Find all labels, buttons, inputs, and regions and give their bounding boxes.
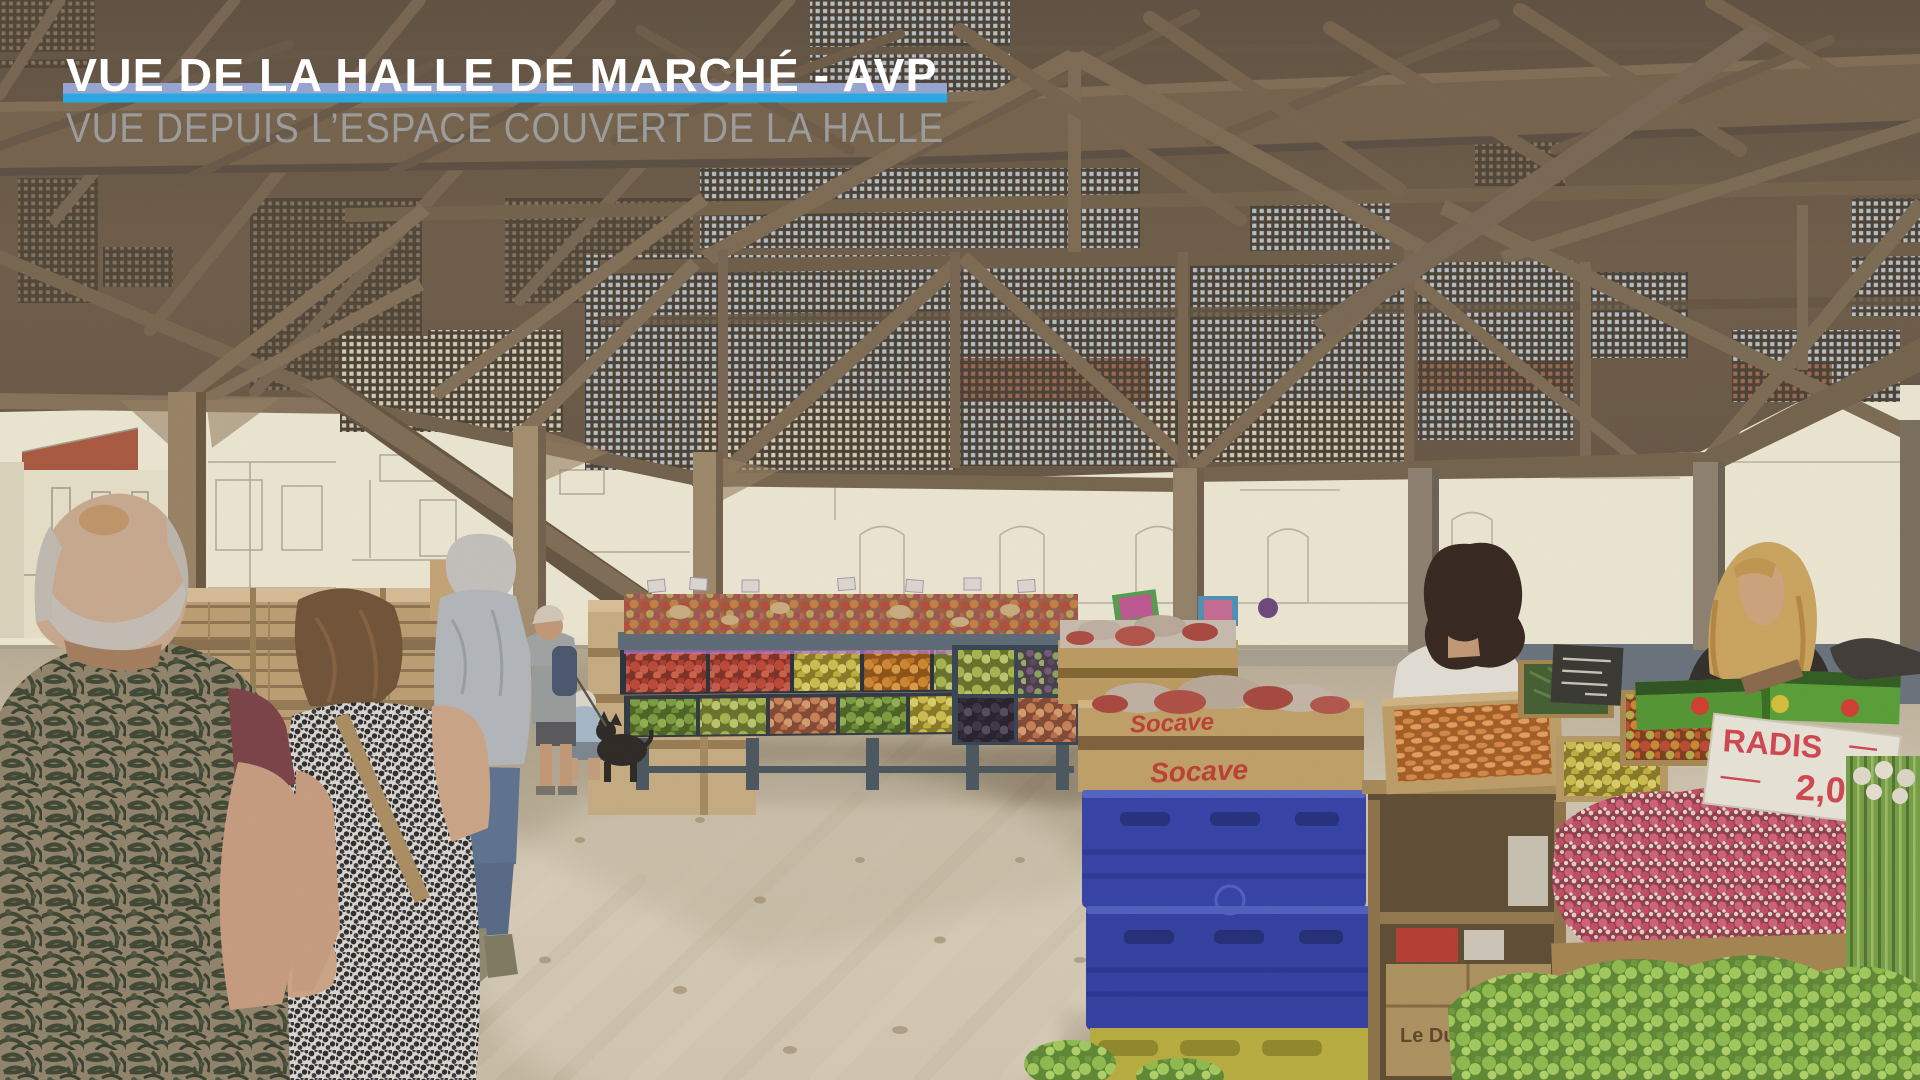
svg-text:VUE DE LA HALLE DE MARCHÉ - AV: VUE DE LA HALLE DE MARCHÉ - AVP <box>66 49 937 101</box>
svg-text:VUE DEPUIS L’ESPACE COUVERT DE: VUE DEPUIS L’ESPACE COUVERT DE LA HALLE <box>66 105 944 152</box>
